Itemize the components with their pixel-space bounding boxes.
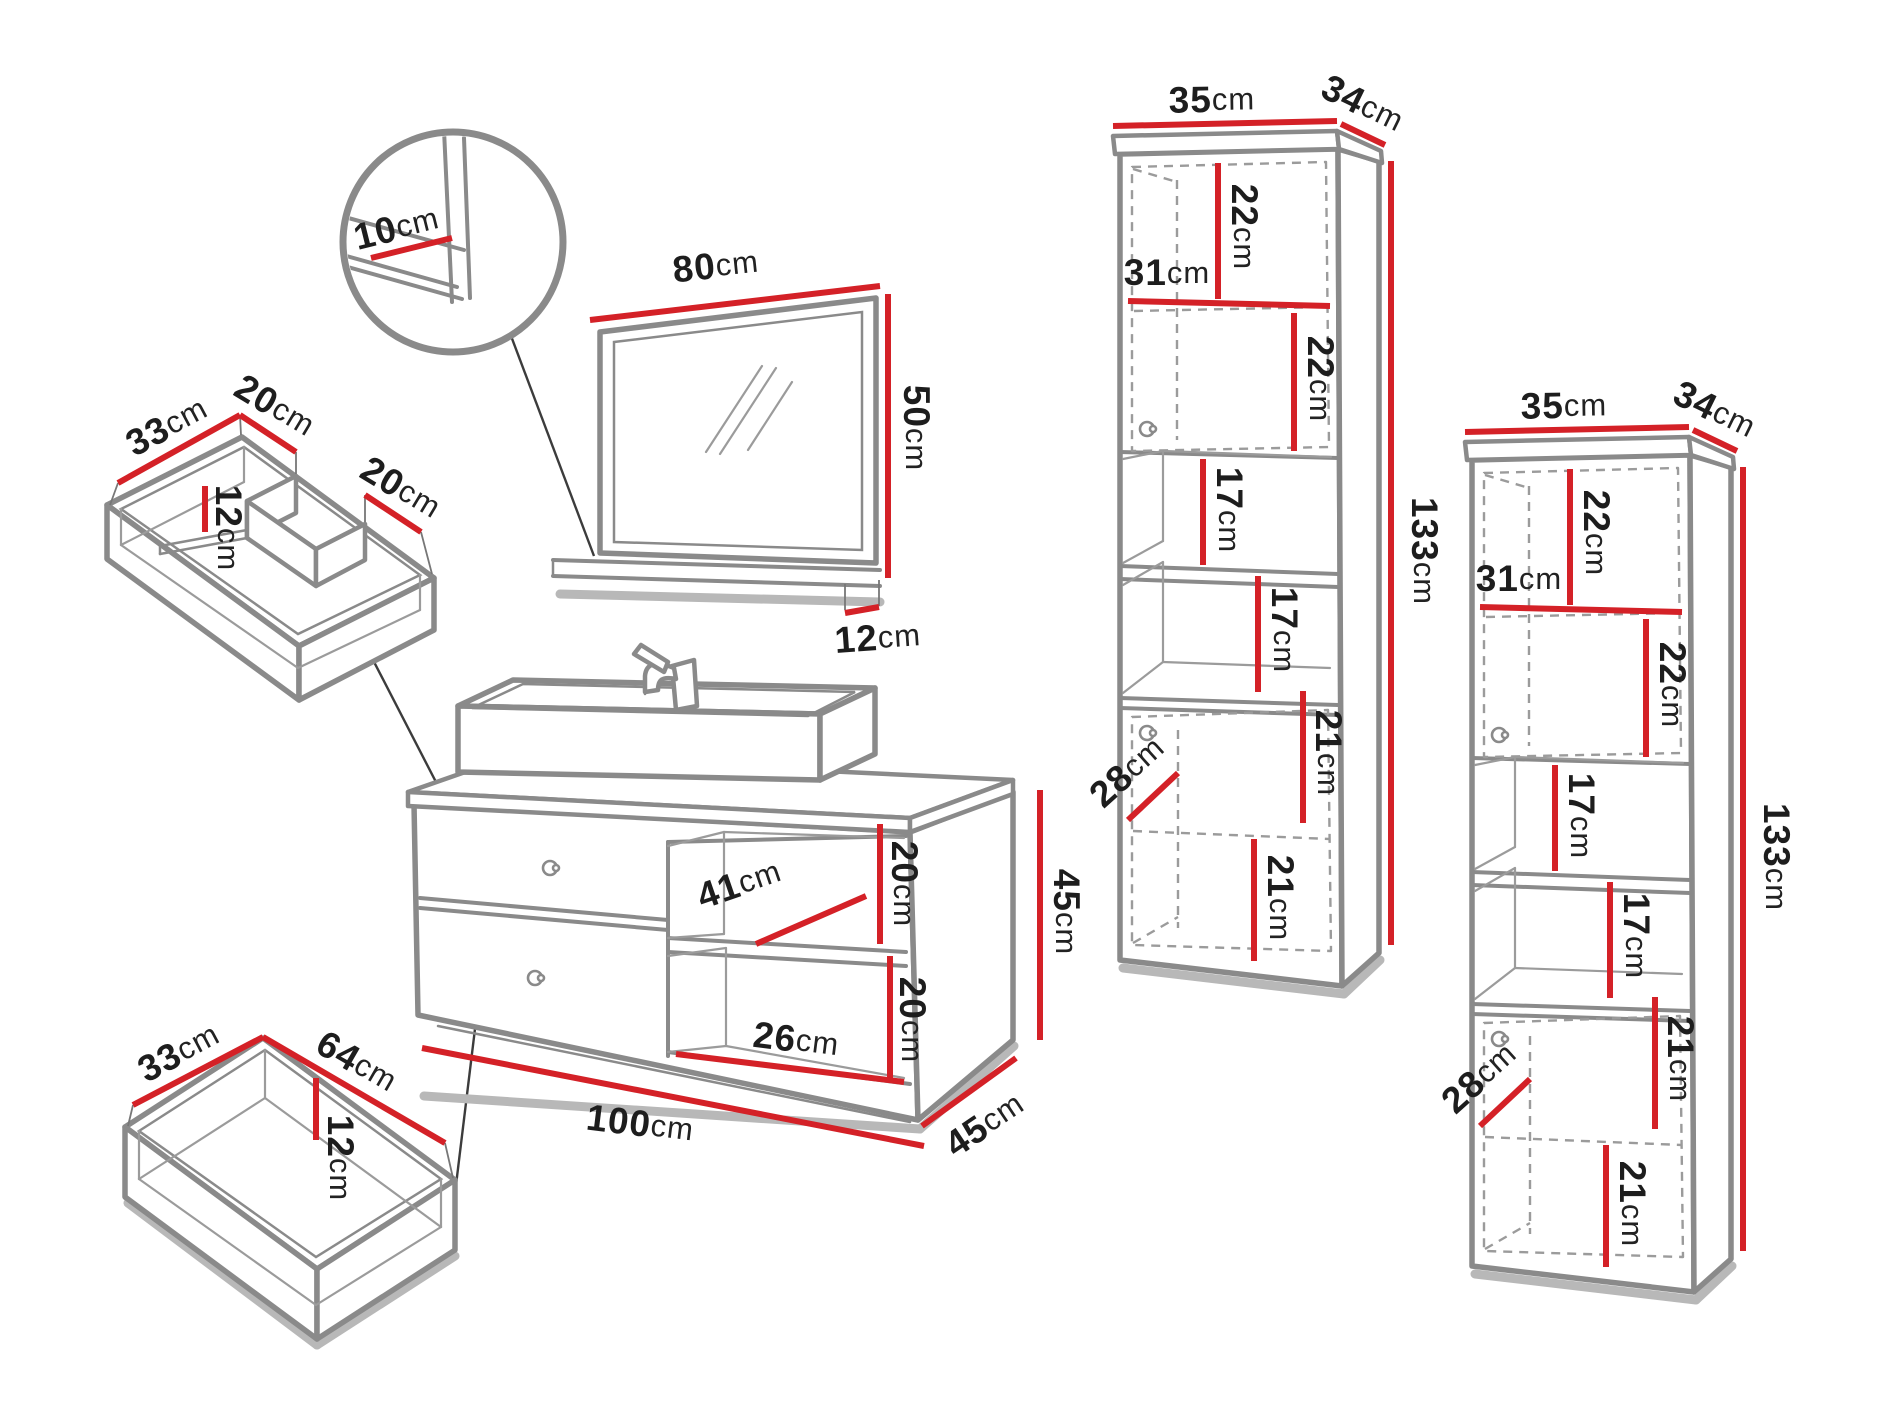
tall-cabinet-2: 35cm 34cm 22cm 31cm 22cm 17cm 17cm 21cm … [1433, 372, 1797, 1300]
cabinet-openshelf2-label: 17cm [1264, 587, 1305, 673]
tall-cabinet-1: 35cm 34cm 22cm 31cm 22cm 17cm 17cm 21cm … [1081, 66, 1445, 994]
cabinet-niche1-label: 22cm [1576, 490, 1617, 576]
cabinet-niche2-label: 22cm [1652, 642, 1693, 728]
mirror-shelf-depth-label: 12cm [833, 614, 922, 661]
cabinet-niche2-label: 22cm [1300, 336, 1341, 422]
sink-drawer: 33cm 20cm 12cm 20cm [107, 366, 449, 700]
vanity-unit: 41cm 20cm 20cm 26cm 100cm 45cm 45cm [408, 645, 1087, 1165]
vanity-upper-niche-label: 20cm [884, 841, 925, 927]
cabinet-side [1338, 149, 1379, 986]
mirror-width-label: 80cm [671, 240, 761, 290]
bottom-drawer-height-label: 12cm [320, 1115, 361, 1201]
cabinet-doorniche1-label: 21cm [1308, 710, 1349, 796]
vanity-width-label: 100cm [584, 1096, 696, 1150]
vanity-lower-niche-label: 20cm [892, 977, 933, 1063]
mirror: 80cm 50cm 12cm [553, 240, 937, 660]
connector-bubble-to-mirror [505, 320, 594, 556]
cabinet-openshelf1-label: 17cm [1209, 467, 1250, 553]
cabinet-width-line [1465, 427, 1689, 432]
sink-drawer-left-width-label: 20cm [228, 366, 323, 446]
detail-bubble: 10cm [300, 130, 563, 352]
cabinet-doorniche1-label: 21cm [1660, 1016, 1701, 1102]
cabinet-width-label: 35cm [1520, 384, 1607, 427]
cabinet-width-line [1113, 121, 1337, 126]
cabinet-openshelf2-label: 17cm [1616, 893, 1657, 979]
cabinet-doorniche2-label: 21cm [1612, 1161, 1653, 1247]
cabinet-height-label: 133cm [1756, 803, 1797, 911]
diagram-canvas: 10cm 80cm 50cm 12cm [0, 0, 1877, 1408]
cabinet-niche1-label: 22cm [1224, 184, 1265, 270]
cabinet-width-label: 35cm [1168, 78, 1255, 121]
sink-basin [458, 680, 875, 780]
mirror-shelf [553, 560, 880, 602]
cabinet-doorniche2-label: 21cm [1260, 855, 1301, 941]
cabinet-side [1690, 455, 1731, 1292]
sink-drawer-height-label: 12cm [208, 485, 249, 571]
sink-front [458, 706, 820, 780]
cabinet-shelf-width-label: 31cm [1124, 252, 1210, 293]
vanity-height-label: 45cm [1046, 869, 1087, 955]
cabinet-openshelf1-label: 17cm [1561, 773, 1602, 859]
bottom-drawer: 33cm 64cm 12cm [125, 1013, 455, 1345]
cabinet-height-label: 133cm [1404, 497, 1445, 605]
mirror-height-label: 50cm [896, 385, 937, 471]
furniture-dimension-diagram: 10cm 80cm 50cm 12cm [0, 0, 1877, 1408]
cabinet-shelf-width-label: 31cm [1476, 558, 1562, 599]
